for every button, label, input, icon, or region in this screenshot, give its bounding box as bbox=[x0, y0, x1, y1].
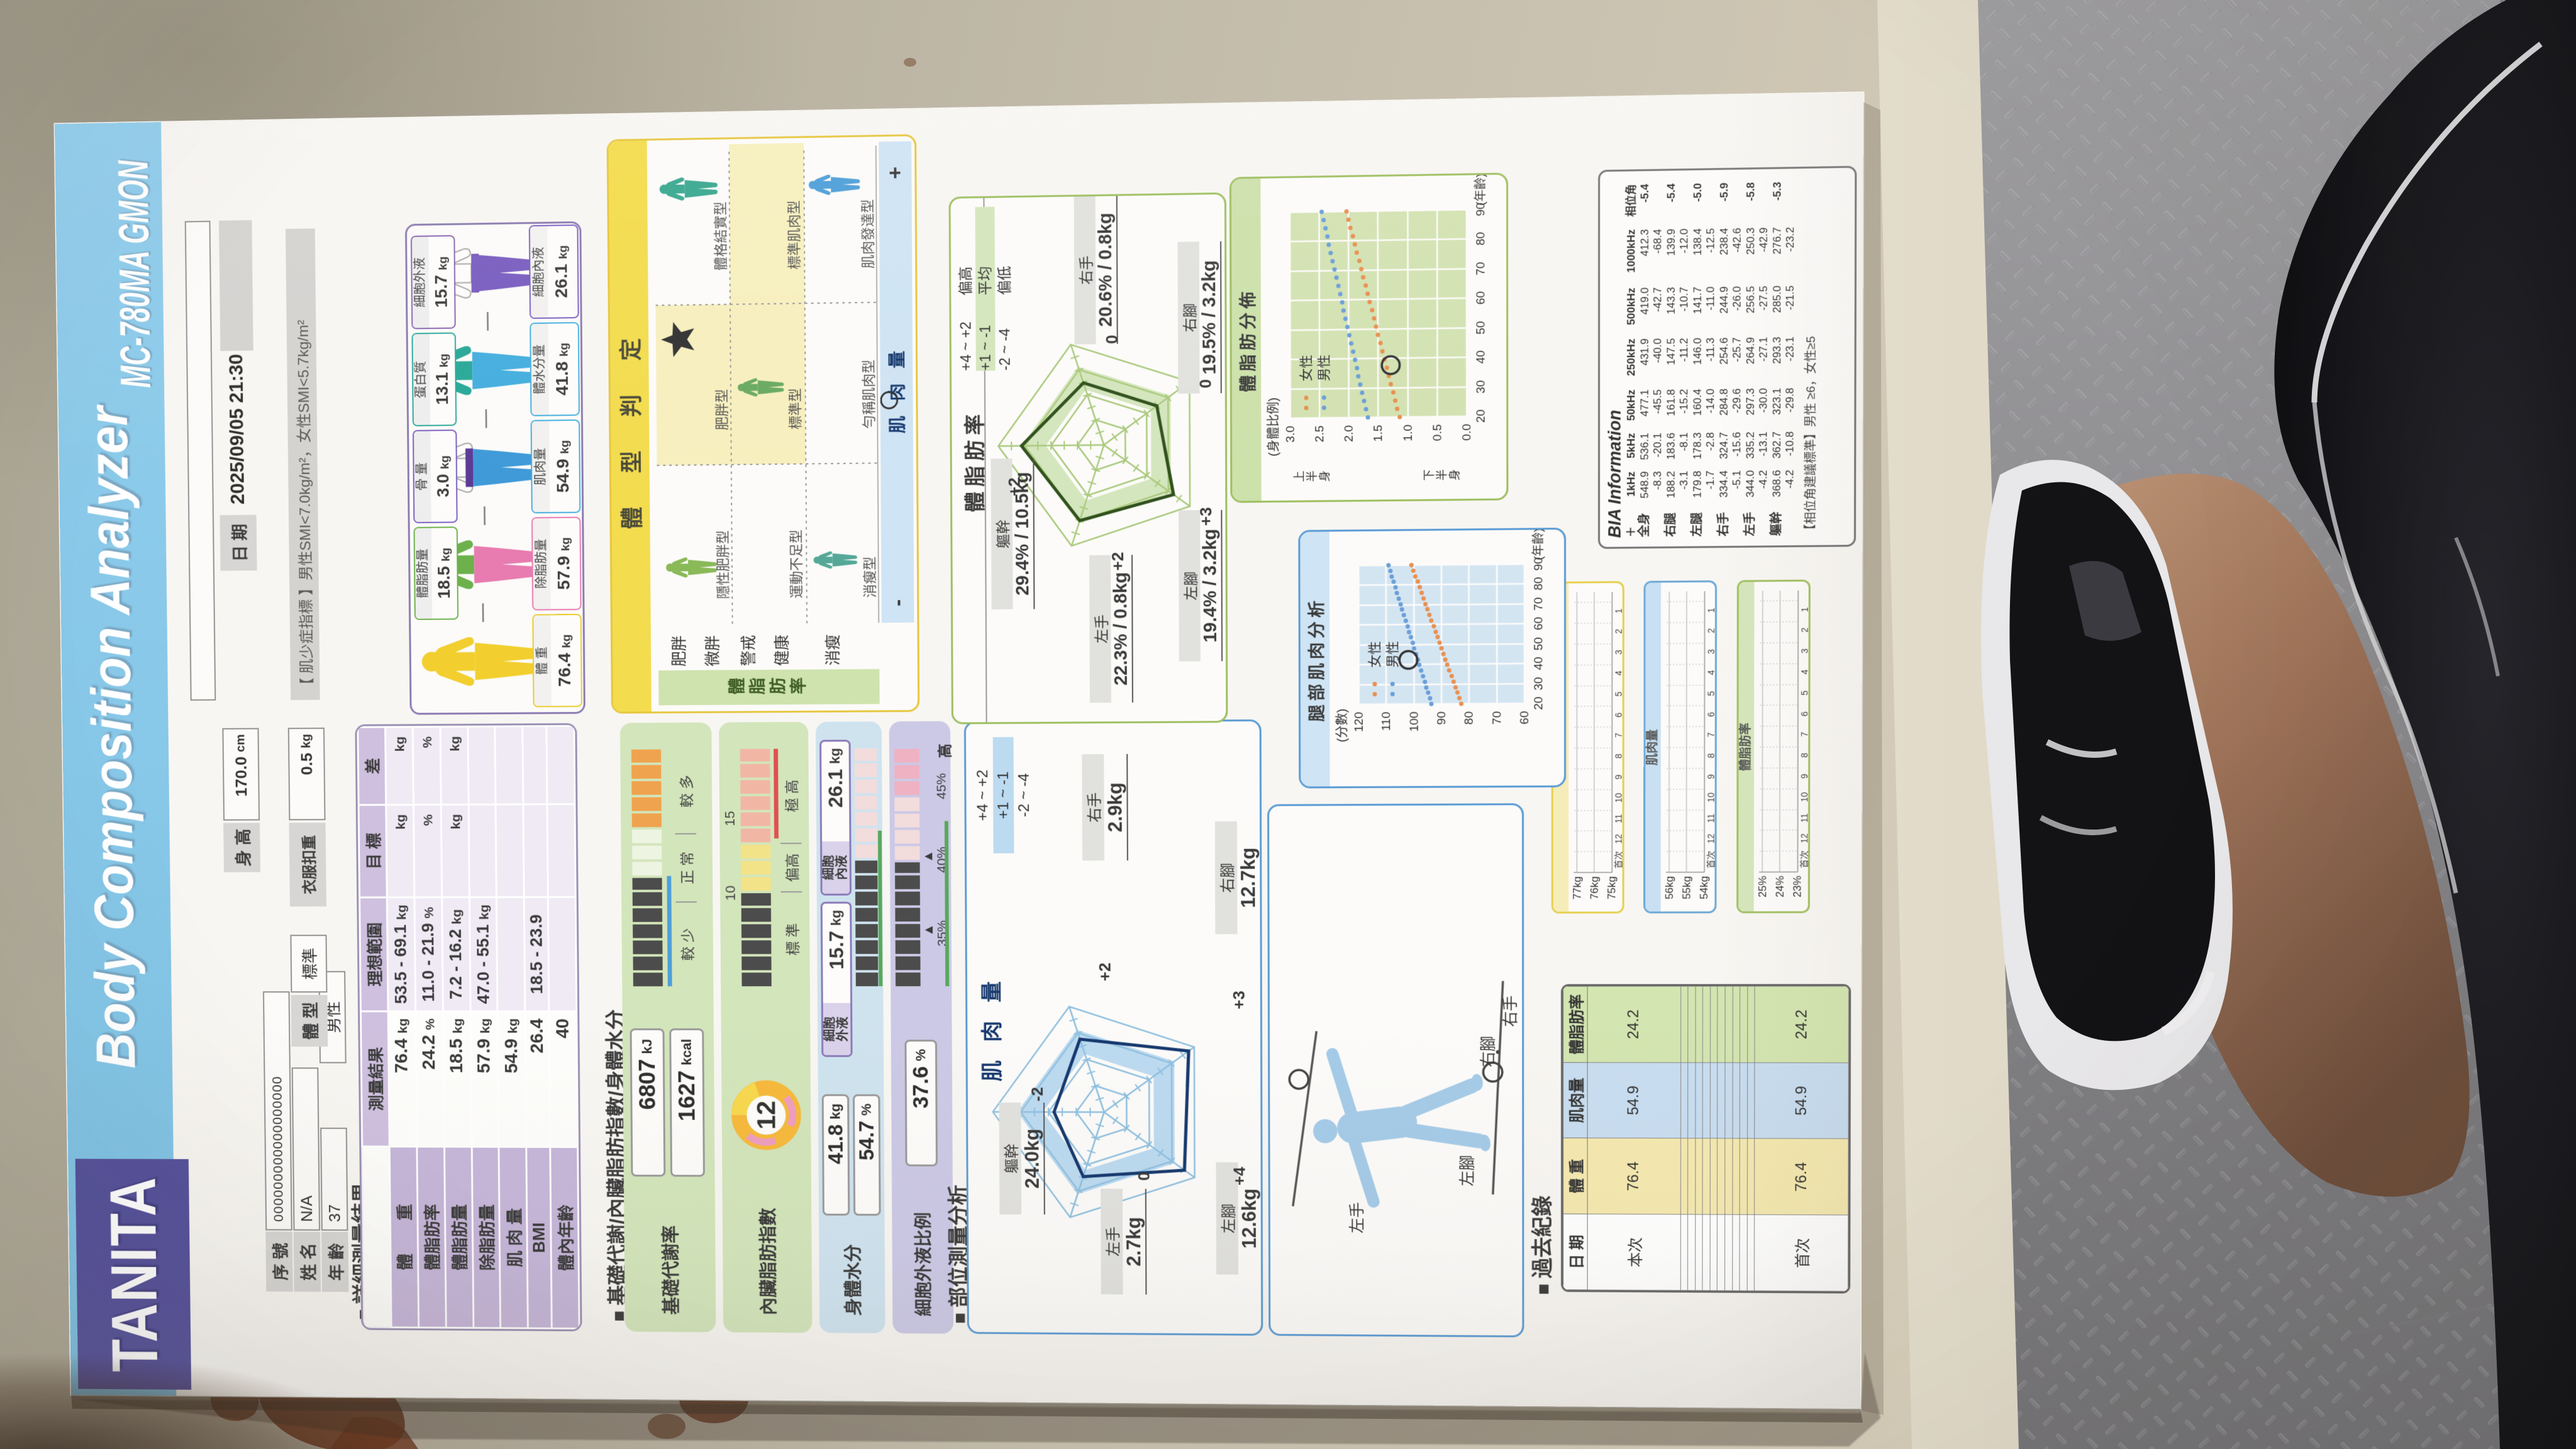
svg-text:55kg: 55kg bbox=[1681, 876, 1693, 899]
svg-text:50: 50 bbox=[1474, 321, 1487, 335]
svg-text:70: 70 bbox=[1490, 711, 1504, 724]
svg-text:56kg: 56kg bbox=[1663, 876, 1675, 899]
svg-text:12: 12 bbox=[1799, 833, 1809, 843]
svg-text:90: 90 bbox=[1434, 711, 1448, 724]
svg-text:首次: 首次 bbox=[1614, 851, 1624, 869]
svg-text:77kg: 77kg bbox=[1572, 876, 1584, 899]
svg-text:1.0: 1.0 bbox=[1401, 425, 1414, 441]
svg-text:男性: 男性 bbox=[1385, 641, 1400, 667]
svg-text:1.5: 1.5 bbox=[1370, 425, 1384, 441]
svg-text:24%: 24% bbox=[1774, 876, 1786, 897]
svg-text:40: 40 bbox=[1474, 350, 1487, 364]
svg-text:7: 7 bbox=[1706, 732, 1716, 737]
svg-text:11: 11 bbox=[1614, 814, 1624, 823]
svg-text:女性: 女性 bbox=[1367, 641, 1382, 667]
svg-text:2: 2 bbox=[1614, 629, 1624, 634]
svg-text:6: 6 bbox=[1614, 713, 1624, 718]
svg-text:50: 50 bbox=[1531, 637, 1545, 650]
svg-text:20: 20 bbox=[1474, 409, 1487, 423]
svg-text:100: 100 bbox=[1407, 711, 1421, 731]
svg-text:4: 4 bbox=[1614, 670, 1624, 675]
svg-text:0.0: 0.0 bbox=[1459, 424, 1473, 441]
svg-text:6: 6 bbox=[1800, 711, 1810, 716]
svg-text:3: 3 bbox=[1800, 648, 1810, 653]
svg-text:3: 3 bbox=[1614, 650, 1624, 655]
svg-text:7: 7 bbox=[1614, 733, 1624, 738]
svg-text:40: 40 bbox=[1531, 657, 1545, 670]
svg-text:23%: 23% bbox=[1792, 875, 1804, 897]
svg-text:75kg: 75kg bbox=[1606, 876, 1618, 899]
svg-text:(分數): (分數) bbox=[1335, 709, 1350, 743]
svg-text:4: 4 bbox=[1706, 670, 1716, 675]
svg-text:80: 80 bbox=[1473, 232, 1487, 246]
svg-text:7: 7 bbox=[1799, 731, 1809, 736]
svg-text:(年齡): (年齡) bbox=[1531, 530, 1545, 560]
svg-text:0.5: 0.5 bbox=[1430, 424, 1444, 441]
svg-text:5: 5 bbox=[1706, 691, 1716, 696]
svg-text:1: 1 bbox=[1614, 608, 1624, 613]
svg-text:70: 70 bbox=[1474, 262, 1487, 275]
svg-text:25%: 25% bbox=[1757, 876, 1768, 897]
svg-text:9: 9 bbox=[1706, 774, 1716, 779]
svg-text:4: 4 bbox=[1800, 669, 1810, 674]
svg-text:6: 6 bbox=[1706, 712, 1716, 717]
svg-text:2: 2 bbox=[1800, 628, 1810, 633]
svg-text:12: 12 bbox=[1614, 834, 1624, 844]
svg-text:(年齡): (年齡) bbox=[1473, 175, 1487, 206]
svg-text:120: 120 bbox=[1352, 712, 1365, 732]
svg-text:76kg: 76kg bbox=[1589, 876, 1601, 899]
svg-text:5: 5 bbox=[1800, 691, 1810, 696]
svg-text:20: 20 bbox=[1531, 697, 1545, 710]
svg-text:5: 5 bbox=[1614, 692, 1624, 697]
svg-text:2.0: 2.0 bbox=[1341, 425, 1355, 442]
svg-text:男性: 男性 bbox=[1316, 355, 1331, 382]
svg-text:10: 10 bbox=[1614, 793, 1624, 803]
svg-text:1: 1 bbox=[1800, 607, 1810, 612]
svg-text:女性: 女性 bbox=[1299, 355, 1314, 382]
svg-text:11: 11 bbox=[1799, 813, 1809, 823]
svg-text:30: 30 bbox=[1531, 677, 1545, 690]
svg-text:80: 80 bbox=[1462, 711, 1475, 724]
svg-text:3.0: 3.0 bbox=[1283, 426, 1297, 443]
svg-text:80: 80 bbox=[1531, 577, 1545, 590]
svg-text:12: 12 bbox=[1706, 834, 1716, 844]
svg-text:12: 12 bbox=[752, 1101, 781, 1130]
svg-text:60: 60 bbox=[1474, 291, 1487, 305]
svg-text:8: 8 bbox=[1799, 753, 1809, 758]
svg-text:110: 110 bbox=[1379, 712, 1392, 731]
svg-text:2.5: 2.5 bbox=[1312, 426, 1326, 443]
svg-text:30: 30 bbox=[1474, 380, 1487, 394]
svg-text:首次: 首次 bbox=[1799, 850, 1809, 868]
svg-text:(身體比例): (身體比例) bbox=[1267, 397, 1281, 457]
svg-text:9: 9 bbox=[1614, 774, 1624, 779]
svg-text:11: 11 bbox=[1706, 814, 1716, 823]
svg-text:8: 8 bbox=[1706, 753, 1716, 758]
svg-text:70: 70 bbox=[1531, 597, 1545, 611]
svg-text:首次: 首次 bbox=[1706, 851, 1716, 869]
svg-text:10: 10 bbox=[1706, 792, 1716, 802]
svg-text:1: 1 bbox=[1706, 608, 1716, 613]
svg-text:3: 3 bbox=[1706, 649, 1716, 654]
svg-text:2: 2 bbox=[1706, 628, 1716, 633]
svg-text:10: 10 bbox=[1799, 792, 1809, 802]
svg-text:60: 60 bbox=[1531, 617, 1545, 630]
svg-text:54kg: 54kg bbox=[1698, 876, 1710, 899]
svg-text:9: 9 bbox=[1799, 774, 1809, 779]
svg-text:60: 60 bbox=[1517, 711, 1531, 724]
svg-text:8: 8 bbox=[1614, 753, 1624, 758]
